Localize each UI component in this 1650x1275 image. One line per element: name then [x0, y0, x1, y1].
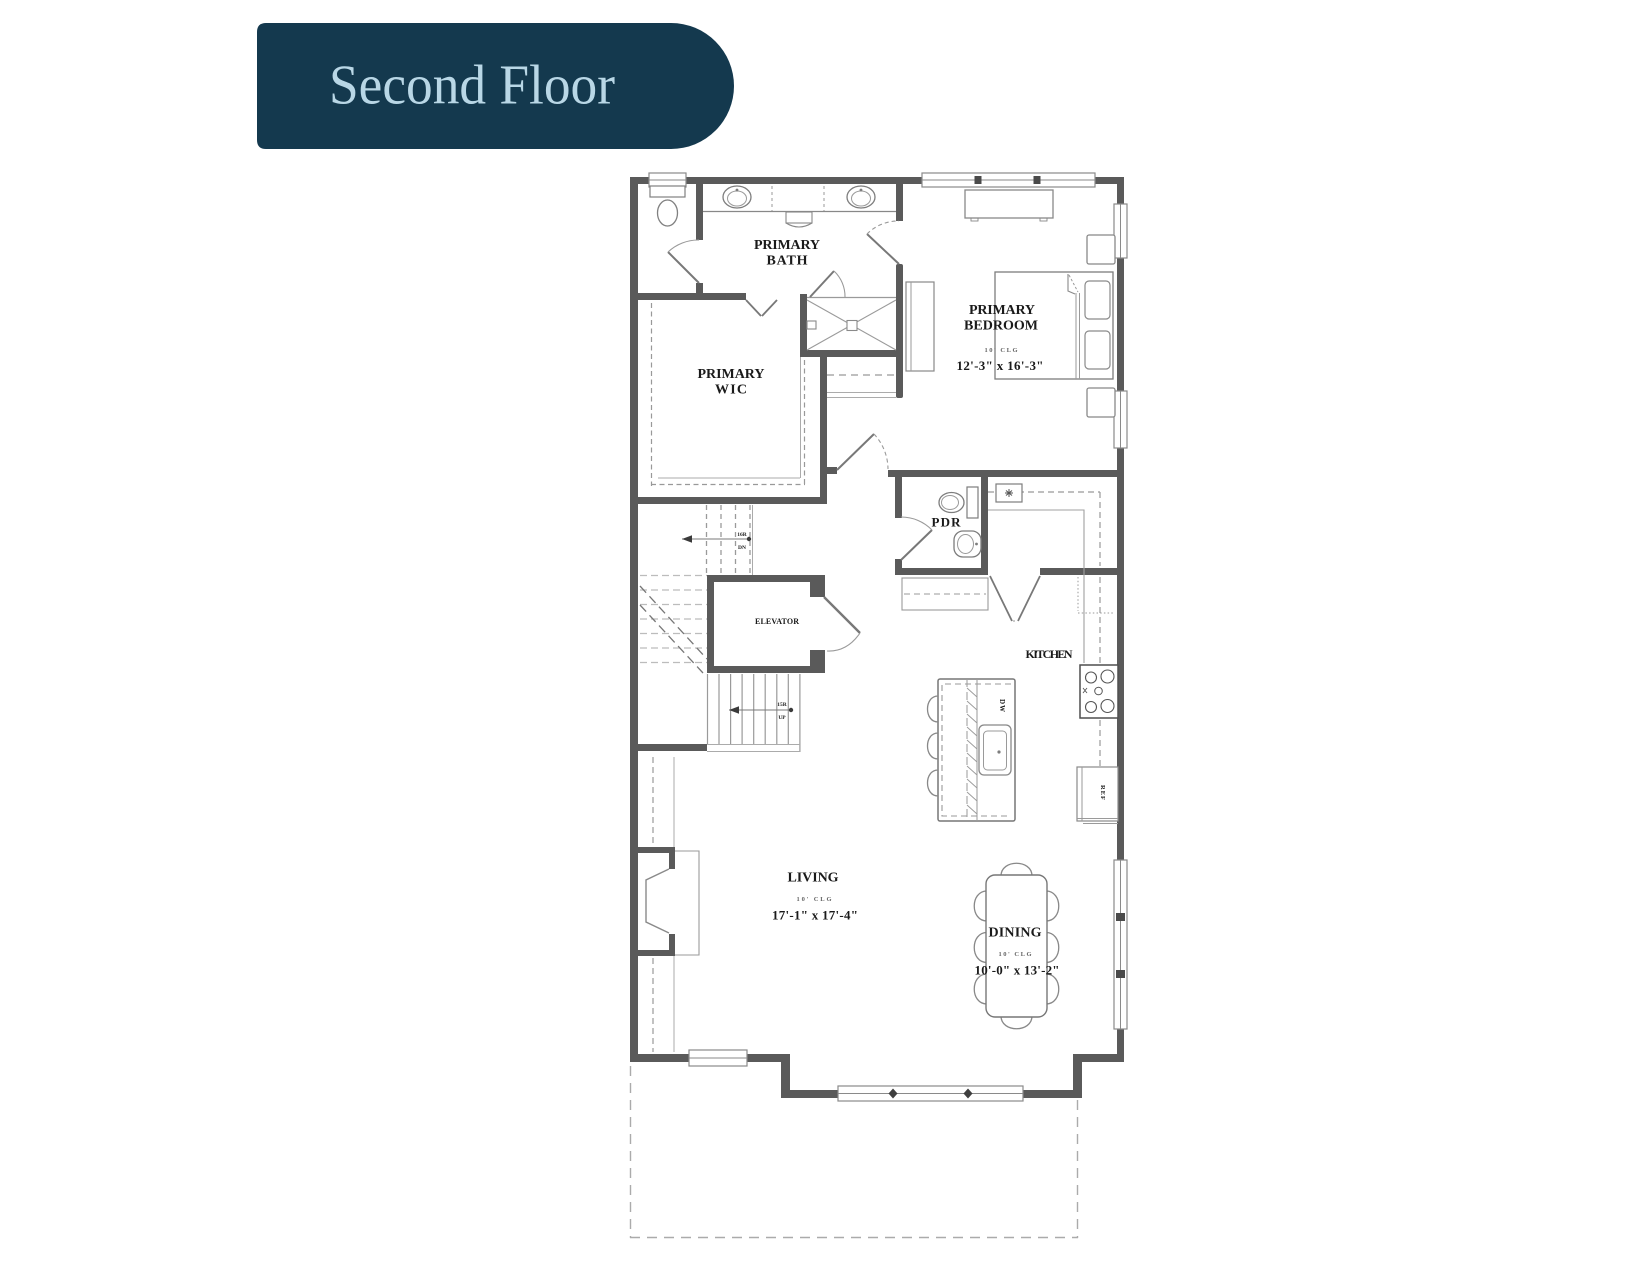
svg-text:PRIMARY: PRIMARY	[754, 238, 820, 253]
svg-text:LIVING: LIVING	[788, 871, 839, 886]
svg-text:WIC: WIC	[715, 383, 747, 398]
svg-text:10'-0" x 13'-2": 10'-0" x 13'-2"	[975, 963, 1060, 978]
svg-text:BATH: BATH	[767, 254, 808, 269]
svg-text:10' CLG: 10' CLG	[999, 951, 1032, 958]
svg-text:PDR: PDR	[932, 515, 962, 530]
svg-text:DN: DN	[738, 545, 746, 551]
svg-text:REF: REF	[1099, 785, 1106, 800]
svg-text:10' CLG: 10' CLG	[797, 896, 832, 903]
svg-text:UP: UP	[778, 715, 786, 721]
svg-text:17'-1" x 17'-4": 17'-1" x 17'-4"	[772, 908, 858, 923]
svg-text:BEDROOM: BEDROOM	[964, 319, 1038, 334]
svg-text:Second Floor: Second Floor	[329, 55, 615, 117]
svg-text:PRIMARY: PRIMARY	[969, 303, 1035, 318]
svg-text:KITCHEN: KITCHEN	[1026, 647, 1073, 661]
svg-text:DW: DW	[998, 699, 1006, 712]
svg-text:16R: 16R	[737, 532, 748, 538]
svg-text:PRIMARY: PRIMARY	[698, 367, 765, 382]
svg-text:15R: 15R	[777, 702, 788, 708]
svg-text:DINING: DINING	[989, 926, 1042, 941]
svg-text:ELEVATOR: ELEVATOR	[755, 617, 799, 626]
svg-text:12'-3" x 16'-3": 12'-3" x 16'-3"	[957, 358, 1044, 373]
svg-text:10' CLG: 10' CLG	[985, 347, 1018, 354]
